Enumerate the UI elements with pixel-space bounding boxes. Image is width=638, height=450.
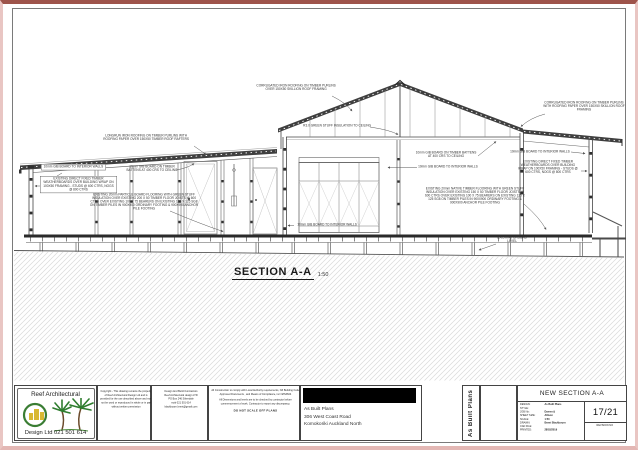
- note-right-roof: CORRUGATED IRON ROOFING ON TIMBER PURLIN…: [541, 101, 627, 112]
- field-value: As Built Plans: [544, 403, 561, 407]
- section-title-text: SECTION A-A: [232, 266, 314, 280]
- project-name: As Built Plans: [304, 406, 362, 414]
- field-value: 28/03/2019: [544, 429, 557, 433]
- drawing-title: NEW SECTION A-A: [518, 386, 626, 402]
- contractor-box: Design And Build Contractors Reef Archit…: [151, 385, 208, 441]
- logo-company-name: Reef Architectural: [18, 391, 94, 398]
- revision-label: REVISION NO: [585, 424, 625, 428]
- note-ground-level: EXISTING GROUND LEVEL: [495, 236, 529, 243]
- contractor-line: blackbourn.brent@gmail.com: [154, 405, 208, 409]
- palm-trees-icon: [18, 398, 97, 432]
- spare-box: [480, 385, 517, 441]
- project-address: 306 West Coast Road: [304, 414, 362, 422]
- note-right-weatherboards: EXISTING DIRECT FIXED TIMBER WEATHERBOAR…: [516, 160, 580, 174]
- redacted-bar: [303, 388, 416, 403]
- logo-phone: Design Ltd 021 501 614: [18, 430, 94, 436]
- note-left-gib-walls: 10mm GIB BOARD TO INTERIOR WALLS: [41, 164, 106, 170]
- field-label: PRINTED:: [520, 429, 544, 433]
- note-mid-roof: CORRUGATED IRON ROOFING ON TIMBER PURLIN…: [252, 84, 340, 91]
- note-mid-ceiling-gib: 10mm GIB BOARD ON TIMBER BATTENS AT 400 …: [415, 151, 477, 158]
- field-value: Brent Blackbourn: [544, 421, 565, 425]
- drawing-sheet: LONGRUN IRON ROOFING ON TIMBER PURLINS W…: [0, 0, 638, 450]
- note-mid-gib-walls: 10mm GIB BOARD TO INTERIOR WALLS: [418, 165, 478, 169]
- note-left-ceiling-gib: 10mm GIB BOARD ON TIMBER BATTENS AT 400 …: [125, 165, 179, 172]
- project-box: As Built Plans 306 West Coast Road Komok…: [300, 385, 422, 441]
- copyright-text: Copyright - This drawing remains the pro…: [100, 390, 152, 409]
- note-left-weatherboards: EXISTING DIRECT FIXED TIMBER WEATHERBOAR…: [40, 176, 117, 193]
- note-right-gib-walls: 10mm GIB BOARD TO INTERIOR WALLS: [510, 150, 570, 154]
- section-title: SECTION A-A 1:50: [232, 266, 328, 280]
- compliance-text-2: All Dimensions and levels are to be chec…: [211, 398, 300, 406]
- note-left-roof: LONGRUN IRON ROOFING ON TIMBER PURLINS W…: [100, 134, 192, 141]
- sheet-number: 17/21: [584, 402, 626, 423]
- project-city: Komokoriki Auckland North: [304, 421, 362, 429]
- drawing-fields: DESIGN:As Built Plans STYLE: JOB No:Darr…: [520, 403, 587, 432]
- note-mid-gib-walls-2: 10mm GIB BOARD TO INTERIOR WALLS: [296, 223, 358, 227]
- copyright-box: Copyright - This drawing remains the pro…: [97, 385, 151, 441]
- vertical-label: As Built Plans: [463, 386, 479, 440]
- note-right-floor: EXISTING 20mm NATIVE TIMBER FLOORING WIT…: [425, 187, 525, 205]
- vertical-label-box: As Built Plans: [462, 385, 480, 441]
- floor-foundation: [24, 212, 626, 257]
- compliance-text-1: All Construction to comply with Local Au…: [211, 389, 300, 397]
- drawing-info-box: NEW SECTION A-A DESIGN:As Built Plans ST…: [517, 385, 627, 441]
- note-ceiling-insulation: R3.0 GREEN STUFF INSULATION TO CEILING: [300, 124, 374, 128]
- section-scale: 1:50: [318, 272, 329, 278]
- compliance-box: All Construction to comply with Local Au…: [208, 385, 300, 441]
- note-left-floor: EXISTING 20mm PARTICLE BOARD FLOORING WI…: [88, 193, 200, 211]
- revision-cell: REVISION NO: [584, 422, 626, 441]
- logo-box: Reef Architectural Design Ltd 021: [14, 385, 97, 441]
- do-not-scale-note: DO NOT SCALE OFF PLANS: [211, 408, 300, 412]
